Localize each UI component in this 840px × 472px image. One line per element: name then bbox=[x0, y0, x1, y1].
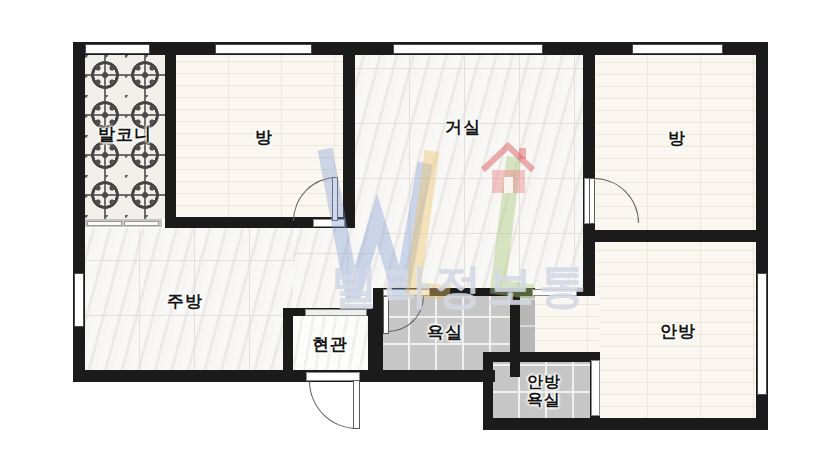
floor-plan-canvas: 빌라정보통 발코니 방 거실 방 주방 현관 욕실 안방 안방 욕실 bbox=[0, 0, 840, 472]
opening-living-master-sill bbox=[532, 289, 577, 296]
hallway-floor bbox=[293, 228, 383, 308]
label-master-bathroom: 안방 욕실 bbox=[527, 373, 561, 410]
window-room-right bbox=[632, 44, 723, 54]
window-room-left bbox=[215, 44, 312, 54]
door-room-left-leaf bbox=[332, 177, 338, 221]
label-living-room: 거실 bbox=[445, 116, 481, 139]
wall-left bbox=[73, 42, 85, 382]
label-master-bathroom-line2: 욕실 bbox=[527, 391, 561, 408]
balcony-sliding-panel-left bbox=[87, 221, 122, 226]
label-room-right: 방 bbox=[668, 127, 686, 150]
window-balcony bbox=[85, 44, 150, 54]
window-master-right bbox=[757, 273, 767, 395]
label-bathroom: 욕실 bbox=[427, 321, 463, 344]
wall-balcony-right bbox=[165, 42, 176, 228]
door-bathroom-leaf bbox=[383, 296, 389, 334]
door-master-bathroom-sill bbox=[591, 360, 600, 416]
label-master-bathroom-line1: 안방 bbox=[527, 373, 561, 390]
front-door-swing-arc bbox=[309, 381, 357, 429]
living-room-floor bbox=[355, 55, 583, 288]
window-living-room bbox=[393, 44, 543, 54]
label-room-left: 방 bbox=[255, 126, 273, 149]
wall-entrance-left bbox=[283, 308, 293, 382]
wall-room-left-living bbox=[343, 42, 355, 228]
label-entrance: 현관 bbox=[312, 333, 348, 356]
label-balcony: 발코니 bbox=[98, 123, 152, 146]
wall-mbath-top bbox=[483, 352, 600, 362]
front-door-leaf bbox=[353, 380, 360, 429]
duct-shaft bbox=[520, 296, 535, 352]
balcony-sliding-panel-right bbox=[124, 221, 159, 226]
door-room-right-leaf bbox=[589, 178, 595, 224]
wall-bath-left bbox=[373, 288, 383, 382]
door-bathroom-sill bbox=[383, 289, 430, 296]
wall-living-bottom-b bbox=[577, 288, 595, 296]
wall-mbath-left bbox=[483, 352, 493, 430]
label-kitchen: 주방 bbox=[167, 290, 203, 313]
wall-living-right bbox=[583, 42, 595, 288]
window-kitchen-left bbox=[74, 273, 84, 327]
front-door-sill bbox=[306, 372, 360, 381]
wall-master-bottom bbox=[483, 418, 768, 430]
wall-bath-right bbox=[510, 288, 520, 377]
master-bedroom-floor-west bbox=[535, 288, 600, 352]
entrance-threshold bbox=[305, 309, 367, 316]
label-master-bedroom: 안방 bbox=[660, 320, 696, 343]
wall-roomright-master bbox=[583, 230, 768, 242]
